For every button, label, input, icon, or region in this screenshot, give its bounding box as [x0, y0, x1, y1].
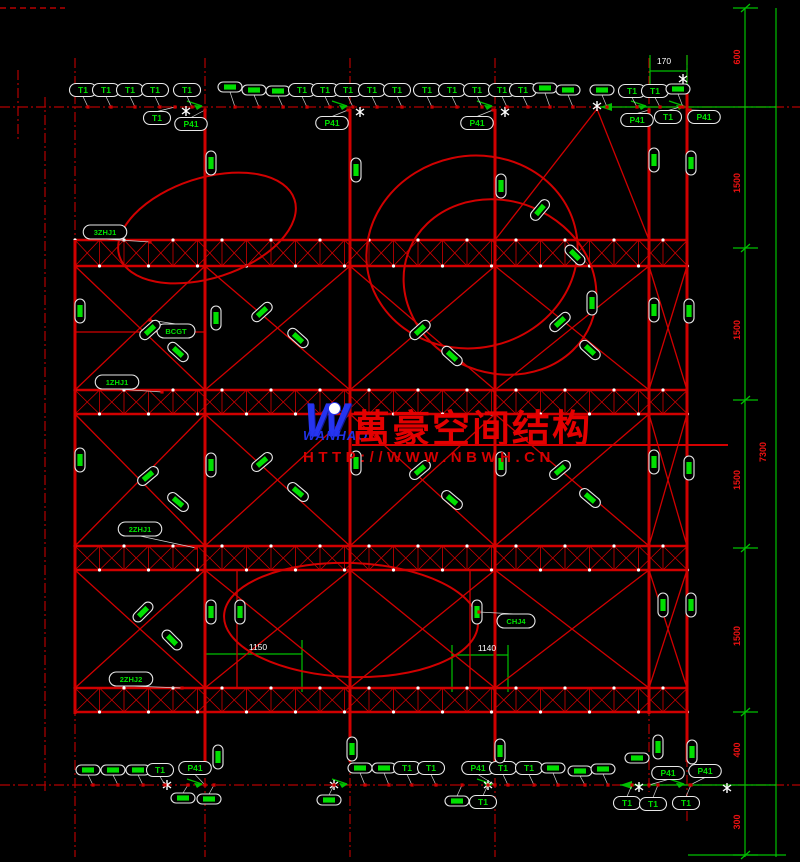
callout-t1: T1 — [464, 84, 491, 97]
svg-text:T1: T1 — [182, 85, 192, 95]
callout-tag — [495, 739, 505, 763]
callout-tag — [556, 85, 580, 95]
svg-text:T1: T1 — [498, 763, 508, 773]
callout-t1: T1 — [359, 84, 386, 97]
svg-text:T1: T1 — [78, 85, 88, 95]
callout-tag — [347, 737, 357, 761]
callout-tag — [649, 450, 659, 474]
dimension-text: 1500 — [732, 626, 742, 646]
dimension-text: 1500 — [732, 173, 742, 193]
svg-text:T1: T1 — [478, 797, 488, 807]
callout-t1: T1 — [510, 84, 537, 97]
svg-text:2ZHJ1: 2ZHJ1 — [129, 525, 152, 534]
structure-layer — [73, 88, 689, 762]
callout-tag — [587, 291, 597, 315]
callout-p41: P41 — [652, 767, 685, 780]
callout-tag — [317, 795, 341, 805]
svg-text:T1: T1 — [524, 763, 534, 773]
callout-p41: P41 — [621, 114, 654, 127]
svg-text:P41: P41 — [696, 112, 711, 122]
svg-text:CHJ4: CHJ4 — [506, 617, 526, 626]
callout-1zhj1: 1ZHJ1 — [95, 375, 139, 389]
svg-text:T1: T1 — [150, 85, 160, 95]
callout-tag — [496, 452, 506, 476]
cad-viewport[interactable]: T1T1T1T1T1T1T1T1T1T1T1T1T1T1T1T1T1T1T1P4… — [0, 0, 800, 862]
svg-text:T1: T1 — [297, 85, 307, 95]
callout-tag — [171, 793, 195, 803]
svg-text:T1: T1 — [622, 798, 632, 808]
callout-tag — [686, 151, 696, 175]
callout-tag — [591, 764, 615, 774]
svg-text:T1: T1 — [497, 85, 507, 95]
callout-tag — [684, 299, 694, 323]
callout-tag — [578, 486, 603, 509]
callout-tag — [649, 298, 659, 322]
callout-tag — [496, 174, 506, 198]
callout-t1: T1 — [614, 797, 641, 810]
callout-tag — [541, 763, 565, 773]
callout-t1: T1 — [418, 762, 445, 775]
callout-p41: P41 — [179, 762, 212, 775]
callout-tag — [658, 593, 668, 617]
svg-text:T1: T1 — [125, 85, 135, 95]
callout-t1: T1 — [655, 111, 682, 124]
callout-tag — [250, 450, 275, 473]
callout-t1: T1 — [516, 762, 543, 775]
svg-text:T1: T1 — [402, 763, 412, 773]
break-symbol — [356, 107, 364, 117]
svg-text:3ZHJ1: 3ZHJ1 — [94, 228, 117, 237]
break-symbol — [593, 101, 601, 111]
callout-tag — [625, 753, 649, 763]
callout-p41: P41 — [175, 118, 208, 131]
callout-tag — [197, 794, 221, 804]
callout-tag — [211, 306, 221, 330]
callout-tag — [533, 83, 557, 93]
svg-text:T1: T1 — [320, 85, 330, 95]
svg-text:P41: P41 — [629, 115, 644, 125]
dimension-layer — [187, 4, 786, 859]
svg-text:T1: T1 — [681, 798, 691, 808]
callout-chj4: CHJ4 — [497, 614, 535, 628]
svg-text:T1: T1 — [367, 85, 377, 95]
svg-text:T1: T1 — [447, 85, 457, 95]
callout-tag — [160, 628, 184, 652]
svg-text:T1: T1 — [518, 85, 528, 95]
callout-t1: T1 — [470, 796, 497, 809]
callout-tag — [166, 340, 191, 363]
svg-text:BCGT: BCGT — [165, 327, 187, 336]
callout-p41: P41 — [689, 765, 722, 778]
callout-tag — [131, 600, 155, 624]
dimension-text: 300 — [732, 814, 742, 829]
callout-tag — [101, 765, 125, 775]
svg-text:T1: T1 — [422, 85, 432, 95]
cad-drawing: T1T1T1T1T1T1T1T1T1T1T1T1T1T1T1T1T1T1T1P4… — [0, 0, 800, 862]
callout-tag — [445, 796, 469, 806]
callout-t1: T1 — [673, 797, 700, 810]
dimension-text: 1500 — [732, 470, 742, 490]
callout-tag — [684, 456, 694, 480]
svg-text:2ZHJ2: 2ZHJ2 — [120, 675, 143, 684]
svg-text:T1: T1 — [155, 765, 165, 775]
callout-t1: T1 — [174, 84, 201, 97]
callout-tag — [250, 300, 275, 323]
callout-t1: T1 — [414, 84, 441, 97]
svg-text:T1: T1 — [152, 113, 162, 123]
break-symbol — [679, 74, 687, 84]
svg-text:T1: T1 — [343, 85, 353, 95]
callout-tag — [218, 82, 242, 92]
callout-2zhj1: 2ZHJ1 — [118, 522, 162, 536]
svg-text:P41: P41 — [183, 119, 198, 129]
dimension-text: 1500 — [732, 320, 742, 340]
callout-3zhj1: 3ZHJ1 — [83, 225, 127, 239]
callout-tag — [649, 148, 659, 172]
callout-t1: T1 — [439, 84, 466, 97]
callout-tag — [666, 84, 690, 94]
svg-text:T1: T1 — [627, 86, 637, 96]
svg-text:P41: P41 — [470, 763, 485, 773]
svg-text:T1: T1 — [426, 763, 436, 773]
callout-t1: T1 — [394, 762, 421, 775]
svg-text:P41: P41 — [324, 118, 339, 128]
svg-text:P41: P41 — [697, 766, 712, 776]
callout-bcgt: BCGT — [157, 324, 195, 338]
dimension-text: 7300 — [758, 442, 768, 462]
callout-tag — [235, 600, 245, 624]
svg-text:T1: T1 — [650, 86, 660, 96]
callout-tag — [528, 198, 551, 223]
break-symbol — [635, 782, 643, 792]
callout-tag — [686, 593, 696, 617]
callout-tag — [351, 451, 361, 475]
callout-t1: T1 — [640, 798, 667, 811]
grid-layer — [0, 8, 800, 857]
callout-tag — [206, 151, 216, 175]
callout-tag — [440, 488, 465, 511]
svg-text:P41: P41 — [660, 768, 675, 778]
callout-tag — [653, 735, 663, 759]
callout-tag — [242, 85, 266, 95]
callout-tag — [687, 740, 697, 764]
callout-t1: T1 — [335, 84, 362, 97]
callout-t1: T1 — [384, 84, 411, 97]
callout-tag — [590, 85, 614, 95]
callout-p41: P41 — [461, 117, 494, 130]
callout-tag — [286, 480, 311, 503]
callout-tag — [206, 600, 216, 624]
callout-tag — [76, 765, 100, 775]
dimension-text: 400 — [732, 742, 742, 757]
svg-text:P41: P41 — [187, 763, 202, 773]
callout-tag — [75, 299, 85, 323]
callout-tag — [206, 453, 216, 477]
svg-text:T1: T1 — [472, 85, 482, 95]
callout-t1: T1 — [117, 84, 144, 97]
callout-t1: T1 — [642, 85, 669, 98]
callout-t1: T1 — [490, 762, 517, 775]
callout-t1: T1 — [147, 764, 174, 777]
callout-tag — [372, 763, 396, 773]
callout-tag — [75, 448, 85, 472]
callout-tag — [136, 464, 161, 487]
dimension-text-white: 1150 — [249, 642, 268, 652]
callout-t1: T1 — [142, 84, 169, 97]
callout-2zhj2: 2ZHJ2 — [109, 672, 153, 686]
callout-tag — [351, 158, 361, 182]
dimension-text: 600 — [732, 49, 742, 64]
callout-t1: T1 — [93, 84, 120, 97]
callout-tag — [266, 86, 290, 96]
dimension-text-white: 1140 — [478, 643, 497, 653]
callout-t1: T1 — [144, 112, 171, 125]
callout-tag — [213, 745, 223, 769]
callout-p41: P41 — [316, 117, 349, 130]
callout-tag — [568, 766, 592, 776]
svg-text:T1: T1 — [101, 85, 111, 95]
dimension-text-white: 170 — [657, 56, 671, 66]
callout-tag — [348, 763, 372, 773]
svg-text:P41: P41 — [469, 118, 484, 128]
svg-text:T1: T1 — [648, 799, 658, 809]
callout-p41: P41 — [688, 111, 721, 124]
svg-text:T1: T1 — [663, 112, 673, 122]
svg-text:1ZHJ1: 1ZHJ1 — [106, 378, 129, 387]
svg-text:T1: T1 — [392, 85, 402, 95]
